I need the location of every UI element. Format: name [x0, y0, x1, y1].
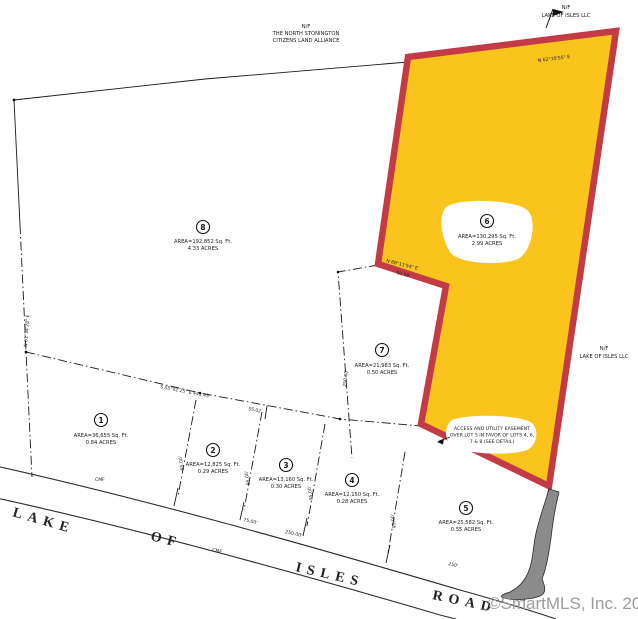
parcel-2-acres: 0.29 ACRES — [198, 469, 228, 475]
road-word-isles: ISLES — [294, 560, 365, 590]
north-owner-name2: CITIZENS LAND ALLIANCE — [273, 38, 340, 44]
parcel-4-number: 4 — [349, 476, 354, 485]
parcel-1-area: AREA=36,655 Sq. Ft. — [74, 433, 129, 439]
north-owner-name1: THE NORTH STONINGTON — [272, 31, 340, 37]
monument-cmf-1: CMF — [95, 477, 105, 483]
parcel-5-label: 5 AREA=25,582 Sq. Ft. 0.55 ACRES — [439, 502, 494, 534]
parcel-5-area: AREA=25,582 Sq. Ft. — [439, 520, 494, 526]
dim-road-250: 250.00' — [285, 529, 303, 539]
smartmls-watermark: ©SmartMLS, Inc. 2024 — [488, 594, 638, 613]
northeast-owner-name: LAKE OF ISLES LLC — [542, 13, 591, 19]
east-owner-name: LAKE OF ISLES LLC — [580, 354, 629, 360]
parcel-7-label: 7 AREA=21,983 Sq. Ft. 0.50 ACRES — [355, 344, 410, 377]
parcel-3-acres: 0.30 ACRES — [271, 484, 301, 490]
bearing-lot8-south: S 55°02'25" E 443.43' — [160, 384, 211, 400]
dim-divider3: 95.00' — [307, 485, 315, 500]
lot7-west-line — [338, 265, 378, 458]
easement-line1: ACCESS AND UTILITY EASEMENT — [454, 426, 530, 432]
parcel-7-number: 7 — [379, 346, 384, 355]
easement-line2: OVER LOT 5 IN FAVOR OF LOTS 4, 6, — [450, 433, 535, 439]
bearing-west-line: N 01°34'28" E — [23, 314, 31, 347]
parcel-8-acres: 4.33 ACRES — [188, 246, 218, 252]
parcel-1-acres: 0.84 ACRES — [86, 440, 116, 446]
survey-plat-map: 8 AREA=192,852 Sq. Ft. 4.33 ACRES 6 AREA… — [0, 0, 638, 619]
parcel-8-area: AREA=192,852 Sq. Ft. — [174, 239, 232, 245]
parcel-6-number: 6 — [484, 217, 489, 226]
parcel-7-area: AREA=21,983 Sq. Ft. — [355, 363, 410, 369]
parcel-3-label: 3 AREA=13,160 Sq. Ft. 0.30 ACRES — [259, 459, 314, 491]
dim-road-75: 75.00' — [243, 517, 258, 526]
east-owner-nf: N/F — [600, 346, 609, 352]
corner-tick — [386, 545, 390, 563]
parcel-1-number: 1 — [98, 416, 103, 425]
divider-lot4-lot5 — [388, 452, 405, 553]
parcel-5-number: 5 — [463, 504, 468, 513]
parcel-6-area: AREA=130,295 Sq. Ft. — [458, 234, 516, 240]
driveway-shape — [501, 489, 559, 599]
parcel-6-acres: 2.99 ACRES — [472, 241, 502, 247]
parcel-1-label: 1 AREA=36,655 Sq. Ft. 0.84 ACRES — [74, 414, 129, 447]
corner-tick — [265, 406, 267, 419]
divider-lot3-lot4 — [307, 424, 325, 526]
road-word-of: OF — [149, 529, 183, 551]
dim-road-250b: 250' — [448, 561, 459, 569]
dim-lot7-west: 250.00' — [342, 369, 350, 387]
road-lower-edge — [0, 498, 456, 619]
parcel-2-area: AREA=12,825 Sq. Ft. — [186, 462, 241, 468]
east-owner-note: N/F LAKE OF ISLES LLC — [580, 346, 629, 360]
parcel-4-acres: 0.28 ACRES — [337, 499, 367, 505]
parcel-3-number: 3 — [283, 461, 288, 470]
dim-divider1: 95.00' — [178, 455, 186, 470]
north-owner-note: N/F THE NORTH STONINGTON CITIZENS LAND A… — [272, 24, 340, 44]
parcel-2-number: 2 — [210, 446, 215, 455]
plat-map-page: 8 AREA=192,852 Sq. Ft. 4.33 ACRES 6 AREA… — [0, 0, 638, 619]
parcel-8-label: 8 AREA=192,852 Sq. Ft. 4.33 ACRES — [174, 221, 232, 253]
road-word-lake: LAKE — [11, 505, 76, 537]
divider-lot1-lot2 — [178, 400, 196, 496]
parcel-4-label: 4 AREA=12,150 Sq. Ft. 0.28 ACRES — [325, 474, 380, 506]
parcel-8-number: 8 — [200, 223, 205, 232]
parcel-3-area: AREA=13,160 Sq. Ft. — [259, 477, 314, 483]
parcel-7-acres: 0.50 ACRES — [367, 370, 397, 376]
north-boundary-line — [14, 62, 408, 100]
easement-line3: 7 & 8 (SEE DETAIL) — [470, 439, 515, 445]
northeast-owner-note: N/F LAKE OF ISLES LLC — [542, 5, 591, 19]
parcel-5-acres: 0.55 ACRES — [451, 527, 481, 533]
monument-cmf-2: CMF — [212, 547, 223, 555]
parcel-2-label: 2 AREA=12,825 Sq. Ft. 0.29 ACRES — [186, 444, 241, 476]
dim-divider4: 95.00' — [390, 513, 398, 528]
west-boundary-upper — [14, 100, 20, 225]
northeast-owner-nf: N/F — [562, 5, 571, 11]
parcel-4-area: AREA=12,150 Sq. Ft. — [325, 492, 380, 498]
north-owner-nf: N/F — [302, 24, 311, 30]
dim-55-02: 55.02' — [248, 406, 263, 415]
divider-lot2-lot3 — [244, 412, 262, 510]
corner-tick — [174, 488, 178, 506]
corner-tick — [303, 518, 307, 536]
